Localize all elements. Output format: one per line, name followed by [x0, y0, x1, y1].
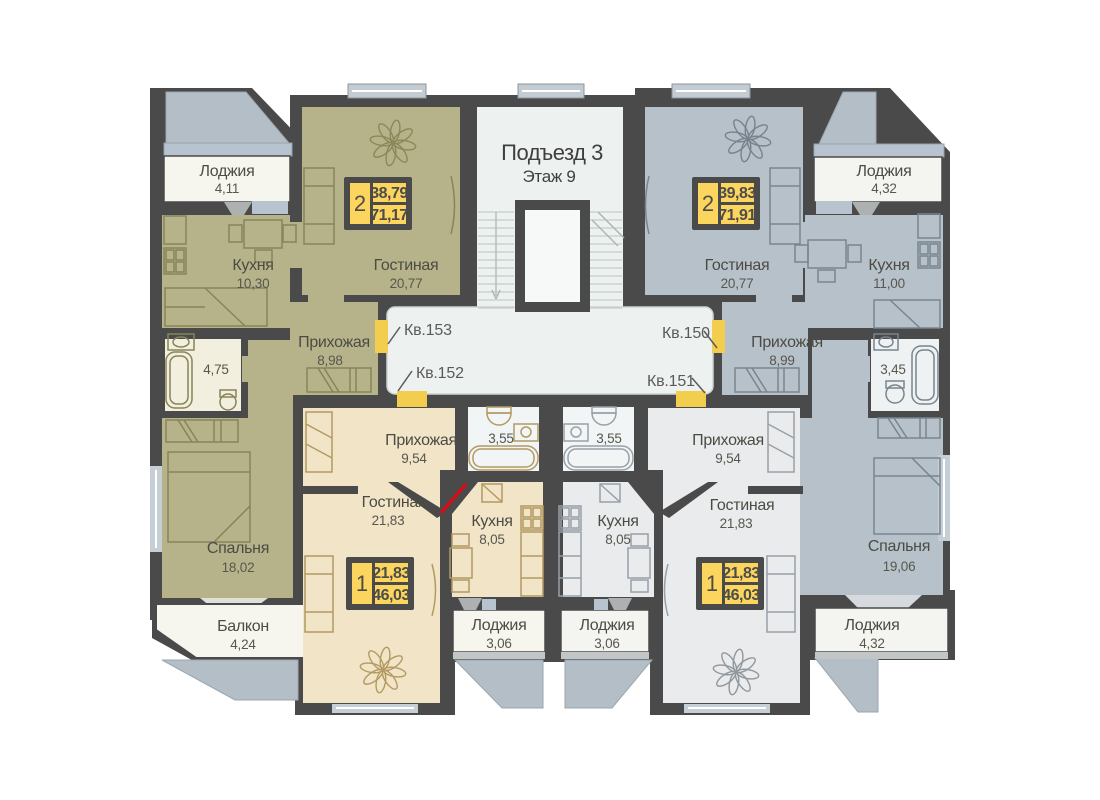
floor-plan: 2 38,79 71,17 2 39,83 71,91 1 21,83 46,0… — [0, 0, 1100, 800]
door-kv150[interactable] — [712, 320, 725, 353]
label-bedroom: Спальня — [207, 540, 269, 557]
label-loggia: Лоджия — [200, 163, 255, 180]
badge-kv150[interactable]: 2 39,83 71,91 — [692, 177, 760, 230]
label-loggia: Лоджия — [857, 163, 912, 180]
label-living: Гостиная — [362, 494, 427, 511]
badge-rooms: 2 — [354, 191, 366, 216]
apartment-kv151[interactable] — [561, 406, 803, 703]
label-bathroom: 3,45 — [880, 362, 905, 377]
badge-rooms: 1 — [356, 571, 368, 596]
kv150-label[interactable]: Кв.150 — [662, 325, 710, 342]
label-bathroom: 3,55 — [488, 431, 513, 446]
label-hall: Прихожая — [692, 432, 764, 449]
label-bedroom: Спальня — [868, 538, 930, 555]
badge-rooms: 1 — [706, 571, 718, 596]
badge-kv153[interactable]: 2 38,79 71,17 — [344, 177, 412, 230]
label-bathroom: 4,75 — [203, 362, 228, 377]
svg-text:19,06: 19,06 — [883, 559, 916, 574]
svg-text:3,06: 3,06 — [594, 636, 619, 651]
label-bathroom: 3,55 — [596, 431, 621, 446]
svg-text:4,32: 4,32 — [871, 181, 896, 196]
label-balcony: Балкон — [217, 618, 269, 635]
label-living: Гостиная — [705, 257, 770, 274]
label-kitchen: Кухня — [597, 513, 638, 530]
badge-living-area: 38,79 — [370, 185, 408, 202]
door-kv153[interactable] — [375, 320, 388, 353]
svg-text:8,98: 8,98 — [317, 353, 342, 368]
label-loggia: Лоджия — [472, 617, 527, 634]
svg-text:11,00: 11,00 — [873, 276, 905, 291]
badge-total-area: 46,03 — [372, 587, 410, 604]
badge-kv152[interactable]: 1 21,83 46,03 — [346, 557, 414, 610]
svg-text:4,32: 4,32 — [859, 636, 884, 651]
svg-text:10,30: 10,30 — [237, 276, 270, 291]
label-living: Гостиная — [710, 497, 775, 514]
label-kitchen: Кухня — [471, 513, 512, 530]
label-hall: Прихожая — [751, 334, 823, 351]
svg-text:18,02: 18,02 — [222, 560, 255, 575]
label-living: Гостиная — [374, 257, 439, 274]
svg-text:9,54: 9,54 — [715, 451, 741, 466]
door-kv152[interactable] — [397, 391, 427, 407]
badge-living-area: 21,83 — [722, 565, 760, 582]
svg-text:8,05: 8,05 — [479, 532, 504, 547]
floor-title: Этаж 9 — [522, 167, 575, 186]
svg-text:9,54: 9,54 — [401, 451, 427, 466]
badge-kv151[interactable]: 1 21,83 46,03 — [696, 557, 764, 610]
svg-text:4,24: 4,24 — [230, 637, 256, 652]
awning-loggia-br — [815, 658, 878, 712]
svg-text:21,83: 21,83 — [720, 516, 753, 531]
svg-text:8,05: 8,05 — [605, 532, 630, 547]
label-loggia: Лоджия — [580, 617, 635, 634]
door-kv151[interactable] — [676, 391, 706, 407]
badge-rooms: 2 — [702, 191, 714, 216]
kv152-label[interactable]: Кв.152 — [416, 365, 464, 382]
badge-total-area: 71,17 — [370, 207, 408, 224]
label-hall: Прихожая — [385, 432, 457, 449]
kv151-label[interactable]: Кв.151 — [647, 373, 695, 390]
label-loggia2: Лоджия — [845, 617, 900, 634]
label-kitchen: Кухня — [868, 257, 909, 274]
label-kitchen: Кухня — [232, 257, 273, 274]
svg-text:20,77: 20,77 — [390, 276, 423, 291]
svg-text:8,99: 8,99 — [769, 353, 794, 368]
svg-text:3,06: 3,06 — [486, 636, 511, 651]
kv153-label[interactable]: Кв.153 — [404, 322, 452, 339]
awning-balcony — [162, 660, 298, 700]
badge-living-area: 21,83 — [372, 565, 410, 582]
entrance-title: Подъезд 3 — [501, 140, 603, 165]
svg-text:20,77: 20,77 — [721, 276, 754, 291]
badge-total-area: 46,03 — [722, 587, 760, 604]
label-hall: Прихожая — [298, 334, 370, 351]
badge-total-area: 71,91 — [718, 207, 756, 224]
svg-text:21,83: 21,83 — [372, 513, 405, 528]
elevator-shaft — [515, 200, 590, 312]
awning-loggia-left — [455, 660, 543, 708]
room-bedroom-kv150 — [800, 418, 943, 595]
awning-loggia-right — [565, 660, 652, 708]
svg-text:4,11: 4,11 — [215, 181, 239, 196]
badge-living-area: 39,83 — [718, 185, 756, 202]
